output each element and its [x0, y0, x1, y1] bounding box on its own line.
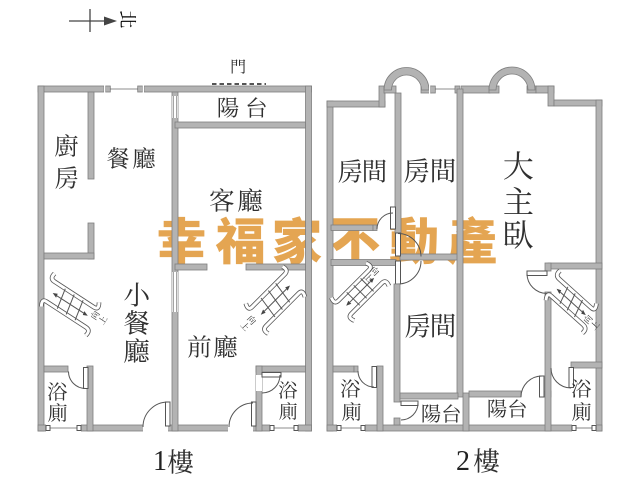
svg-text:2: 2 [456, 446, 470, 477]
svg-text:1: 1 [153, 446, 167, 477]
